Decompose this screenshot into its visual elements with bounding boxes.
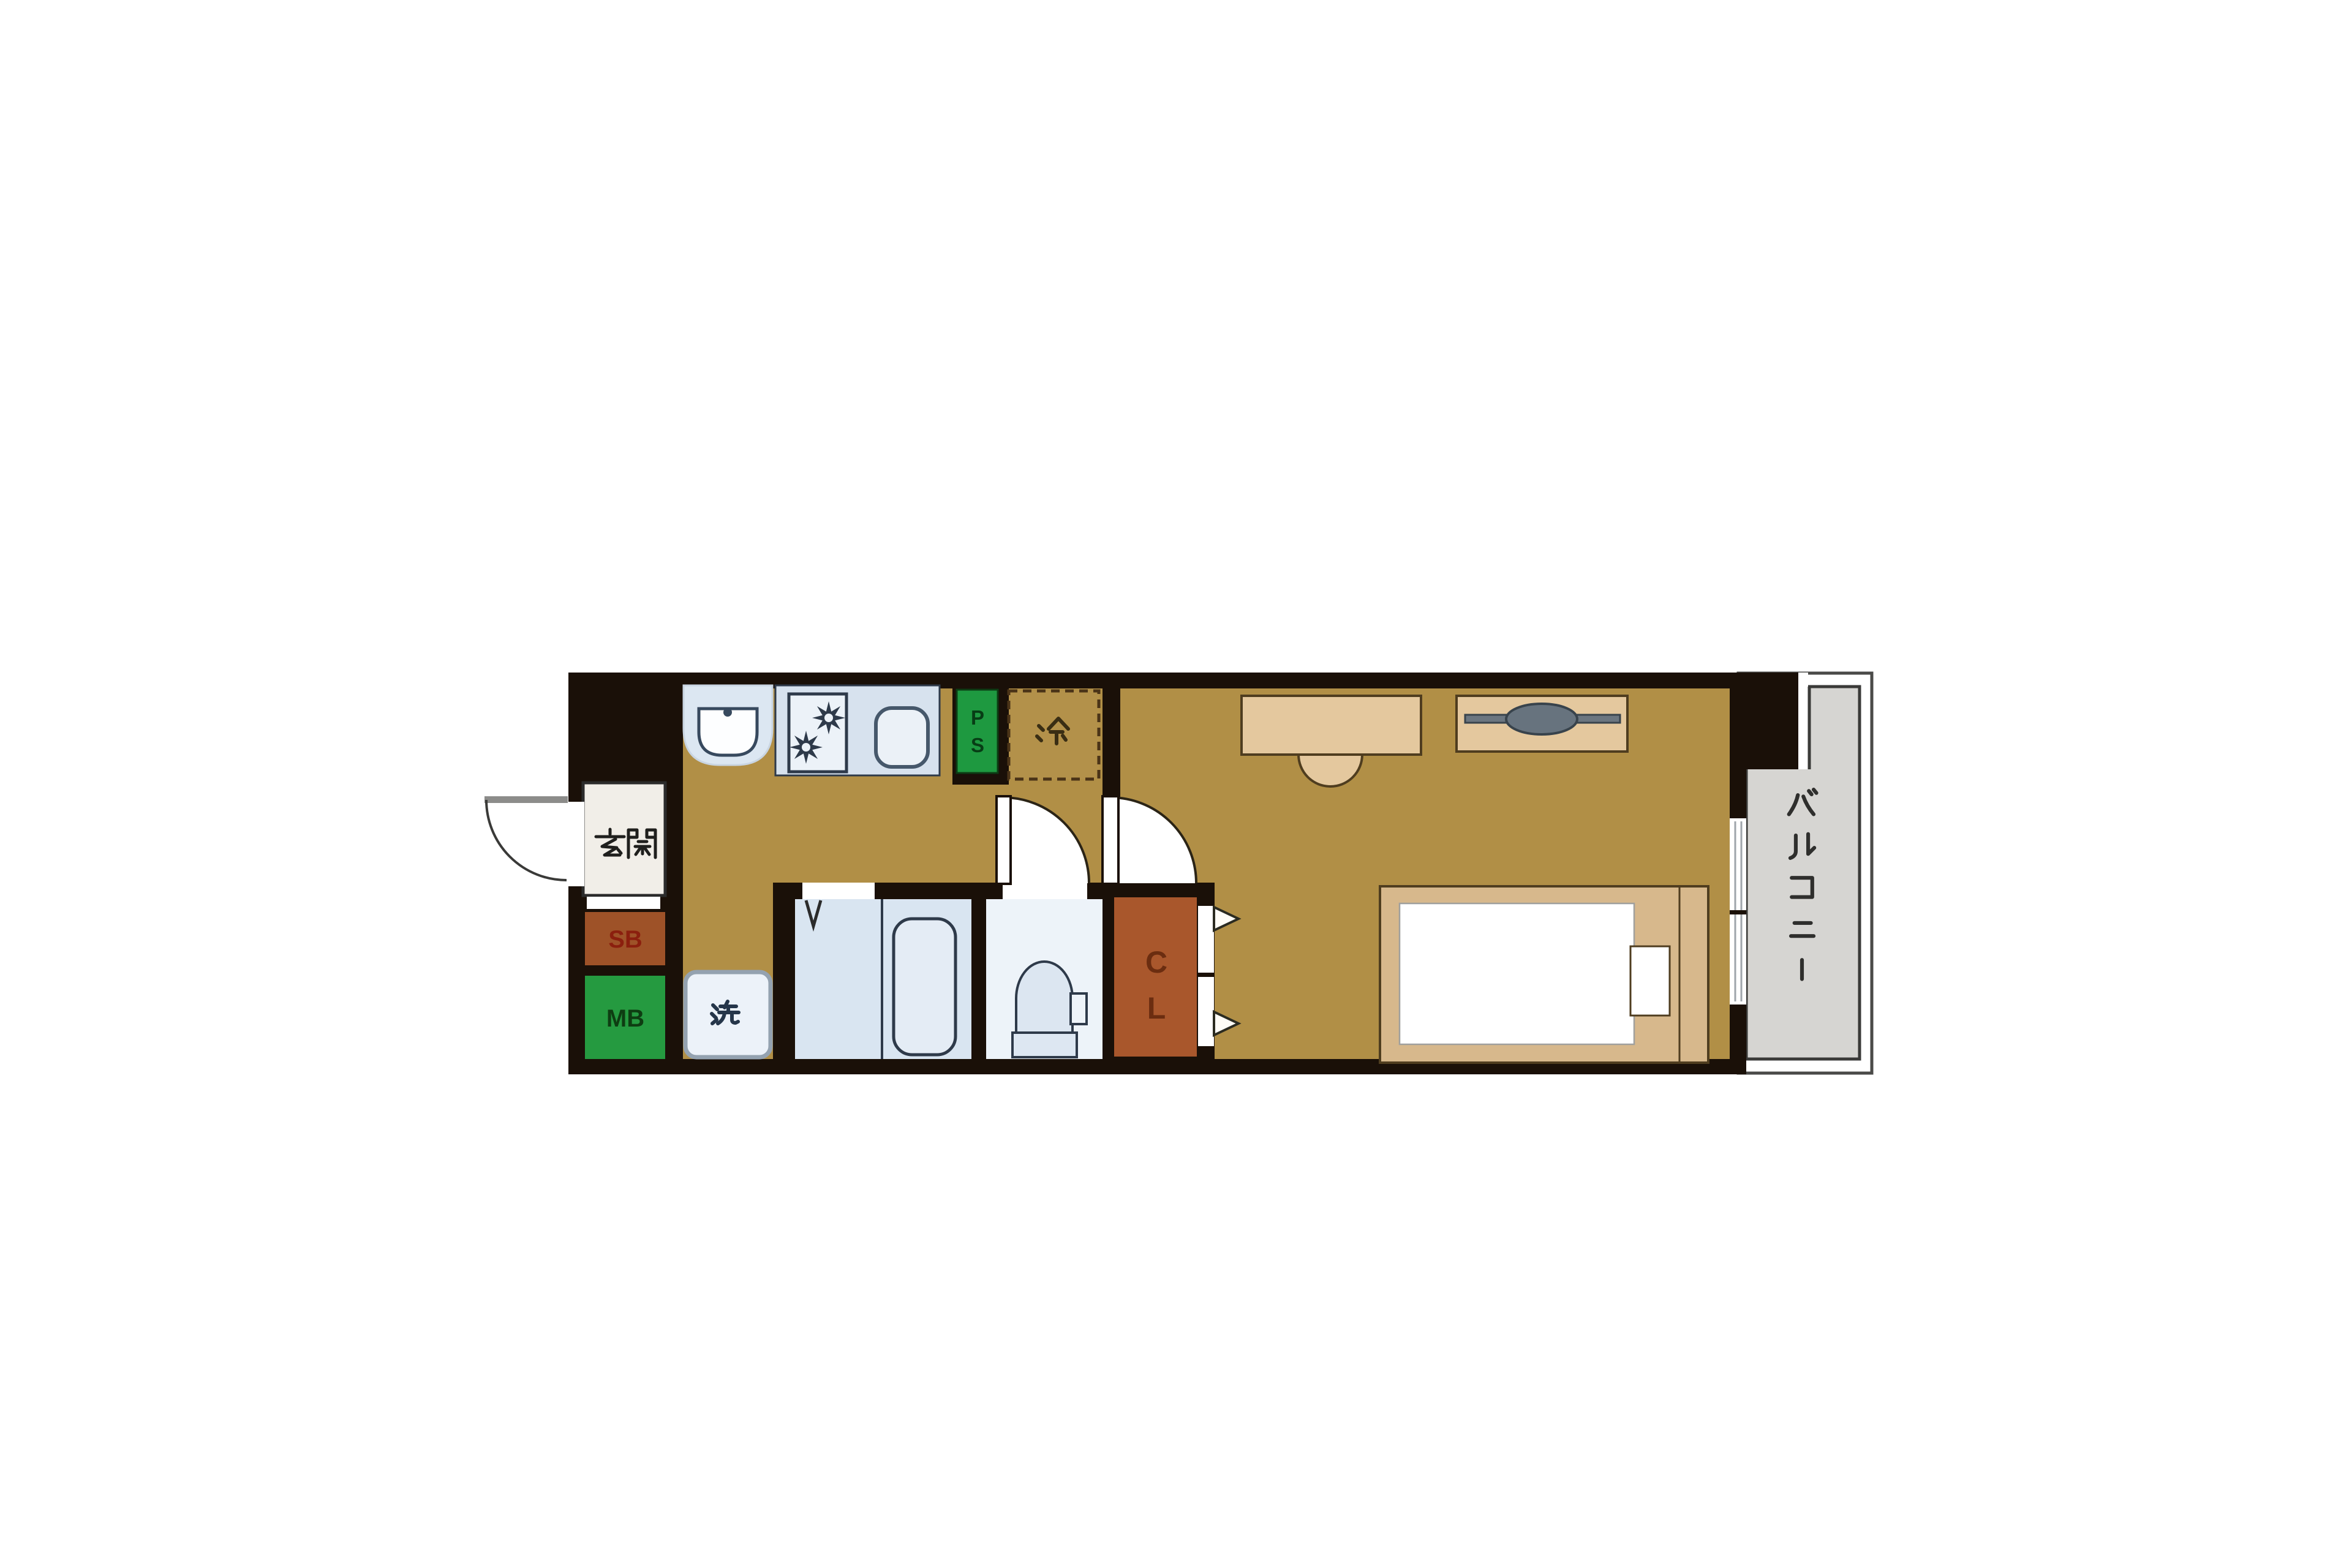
svg-text:L: L	[1147, 991, 1166, 1025]
svg-text:SB: SB	[608, 926, 643, 953]
svg-text:MB: MB	[606, 1005, 644, 1032]
svg-text:P: P	[971, 706, 984, 729]
svg-text:C: C	[1145, 945, 1167, 979]
svg-text:S: S	[971, 734, 984, 756]
